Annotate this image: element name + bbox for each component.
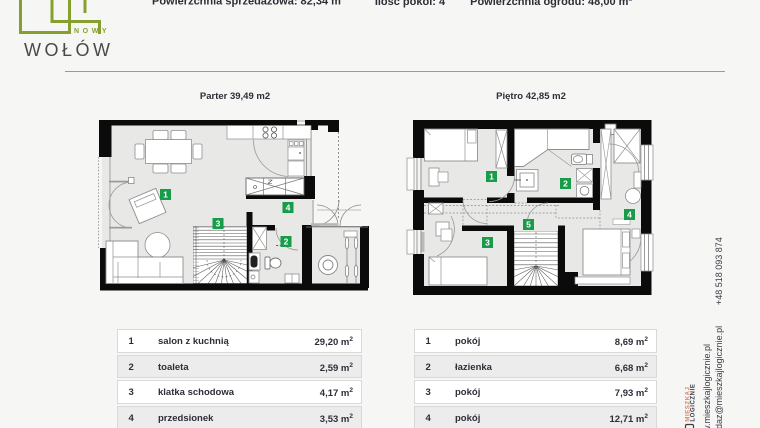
svg-text:4: 4 <box>627 210 632 220</box>
svg-text:5: 5 <box>526 220 531 230</box>
svg-text:1: 1 <box>489 172 494 182</box>
svg-text:2: 2 <box>563 179 568 189</box>
svg-text:3: 3 <box>485 238 490 248</box>
